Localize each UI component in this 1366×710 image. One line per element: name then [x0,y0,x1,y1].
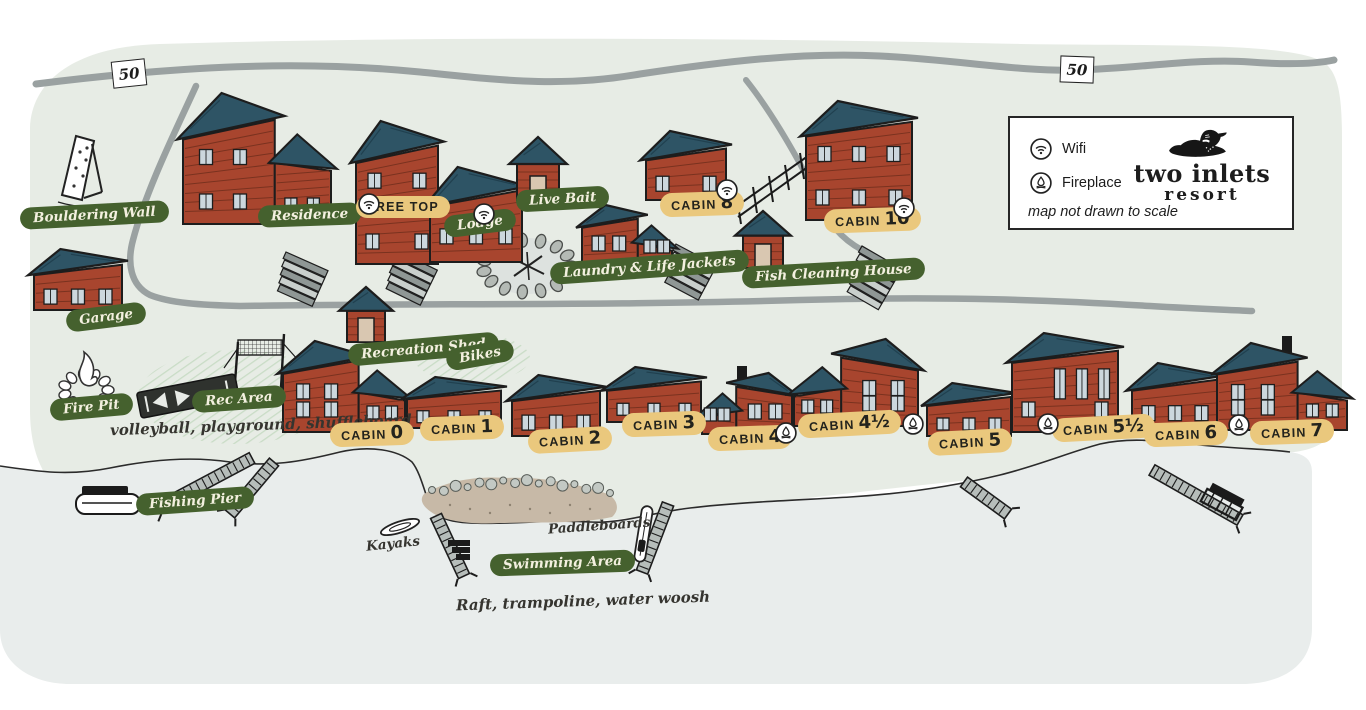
amenity-label-residence: Residence [258,202,362,228]
unit-label-cabin-6: CABIN6 [1144,421,1229,448]
unit-name: CABIN [939,435,985,451]
unit-number: 1 [480,419,493,436]
unit-name: CABIN [835,214,881,230]
unit-number: 7 [1310,423,1323,440]
brand-line2: resort [1122,185,1282,205]
highway-shield: 50 [1060,55,1095,83]
unit-number: 2 [588,430,601,447]
unit-label-cabin-5: CABIN5 [927,428,1012,457]
fireplace-icon [775,422,797,444]
unit-name: CABIN [539,433,585,449]
wifi-icon [1030,138,1052,160]
unit-name: CABIN [671,197,717,213]
loon-icon [1159,122,1245,162]
unit-label-cabin-0: CABIN0 [330,421,415,448]
fireplace-icon [902,413,924,435]
wifi-icon [473,203,495,225]
wifi-icon [358,193,380,215]
legend-disclaimer: map not drawn to scale [1028,204,1178,220]
legend-wifi-row: Wifi [1030,138,1086,160]
unit-name: CABIN [809,418,855,434]
unit-label-cabin-3: CABIN3 [622,411,707,438]
wifi-icon [893,197,915,219]
unit-label-cabin-1: CABIN1 [420,415,505,442]
unit-name: CABIN [1261,425,1307,441]
brand-line1: two inlets [1122,162,1282,186]
unit-name: CABIN [431,421,477,437]
unit-number: 3 [682,415,695,432]
unit-number: 4½ [858,414,890,432]
resort-map: Wifi Fireplace two inlets resort map not… [0,0,1366,710]
unit-name: CABIN [1063,422,1109,438]
unit-label-cabin-7: CABIN7 [1250,419,1335,446]
unit-name: CABIN [341,427,387,443]
unit-name: CABIN [633,417,679,433]
resort-logo: two inlets resort [1122,122,1282,205]
highway-shield: 50 [111,58,148,88]
unit-name: CABIN [1155,427,1201,443]
wifi-icon [716,179,738,201]
legend-fireplace-row: Fireplace [1030,172,1122,194]
unit-number: 0 [390,425,403,442]
fireplace-icon [1030,172,1052,194]
unit-name: CABIN [719,431,765,447]
unit-label-cabin-2: CABIN2 [527,426,612,455]
unit-number: 5 [988,432,1001,449]
fireplace-icon [1228,414,1250,436]
legend: Wifi Fireplace two inlets resort map not… [1008,116,1294,230]
legend-wifi-label: Wifi [1062,141,1086,157]
fireplace-icon [1037,413,1059,435]
unit-number: 5½ [1112,418,1144,436]
unit-number: 6 [1204,425,1217,442]
legend-fireplace-label: Fireplace [1062,175,1122,191]
